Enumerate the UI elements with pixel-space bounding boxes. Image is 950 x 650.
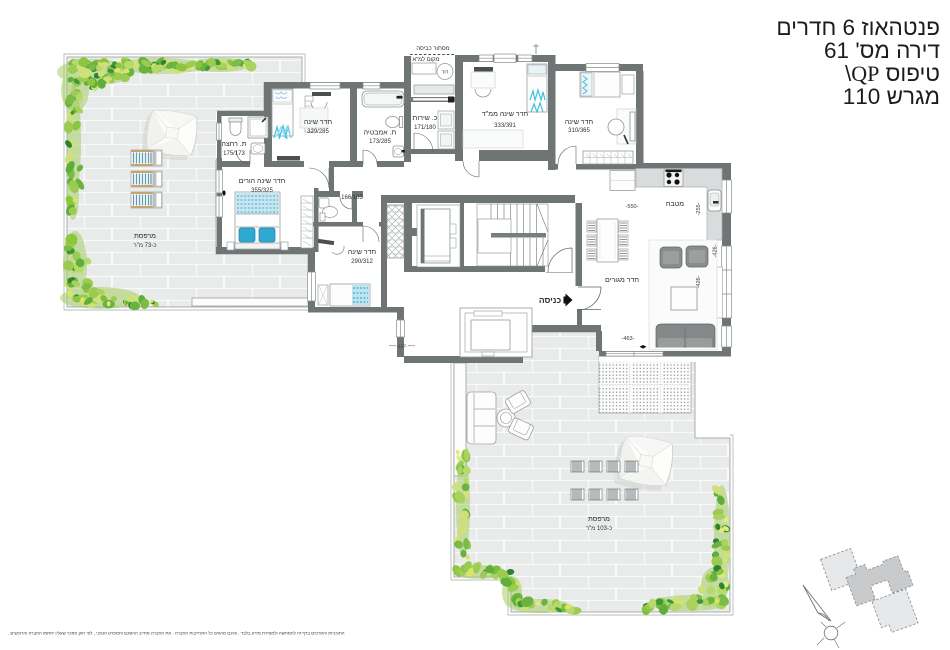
svg-text:מקום למ"א: מקום למ"א xyxy=(412,56,439,63)
svg-text:310/365: 310/365 xyxy=(568,128,590,134)
svg-text:כ. שירות: כ. שירות xyxy=(413,115,438,122)
svg-text:-550-: -550- xyxy=(625,204,638,210)
svg-text:חדר מגורים: חדר מגורים xyxy=(605,277,639,284)
svg-text:166/103: 166/103 xyxy=(341,195,363,201)
svg-text:290/312: 290/312 xyxy=(351,259,373,265)
svg-text:ת. אמבטיה: ת. אמבטיה xyxy=(364,130,397,137)
svg-text:כ-73 מ"ר: כ-73 מ"ר xyxy=(134,243,157,249)
svg-text:-426-: -426- xyxy=(713,244,719,257)
svg-text:175/173: 175/173 xyxy=(223,151,245,157)
svg-text:מטבח: מטבח xyxy=(666,201,684,208)
svg-text:חדר שינה: חדר שינה xyxy=(348,249,377,256)
svg-text:-255-: -255- xyxy=(696,202,702,215)
svg-text:מרפסת: מרפסת xyxy=(588,516,610,523)
svg-text:355/325: 355/325 xyxy=(251,188,273,194)
svg-text:חדר שינה הורים: חדר שינה הורים xyxy=(239,178,286,185)
svg-text:171/180: 171/180 xyxy=(414,125,436,131)
svg-text:173/285: 173/285 xyxy=(369,139,391,145)
svg-text:ת. רחצה: ת. רחצה xyxy=(221,141,246,148)
svg-text:-463-: -463- xyxy=(621,336,634,342)
svg-text:כניסה: כניסה xyxy=(539,295,562,305)
svg-text:דוד: דוד xyxy=(442,70,449,76)
svg-text:חדר שינה ממ"ד: חדר שינה ממ"ד xyxy=(482,111,529,118)
svg-text:329/285: 329/285 xyxy=(307,129,329,135)
svg-text:333/391: 333/391 xyxy=(494,123,516,129)
svg-text:מרפסת: מרפסת xyxy=(134,233,156,240)
svg-text:כ-103 מ"ר: כ-103 מ"ר xyxy=(586,526,612,532)
svg-text:חדר שינה: חדר שינה xyxy=(565,119,594,126)
svg-text:מסתור כביסה: מסתור כביסה xyxy=(416,46,449,52)
svg-text:-426-: -426- xyxy=(696,275,702,288)
svg-text:-107-: -107- xyxy=(396,344,408,350)
svg-text:חדר שינה: חדר שינה xyxy=(304,119,333,126)
